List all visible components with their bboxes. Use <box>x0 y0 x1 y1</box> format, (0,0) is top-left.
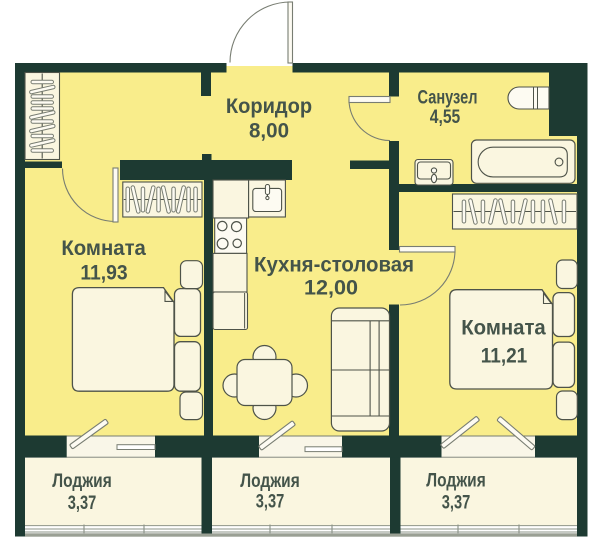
svg-text:3,37: 3,37 <box>442 492 471 513</box>
svg-text:8,00: 8,00 <box>249 120 289 143</box>
svg-text:3,37: 3,37 <box>256 492 285 513</box>
svg-text:4,55: 4,55 <box>430 107 461 128</box>
svg-text:11,93: 11,93 <box>80 262 127 285</box>
svg-text:11,21: 11,21 <box>481 344 528 367</box>
svg-text:Лоджия: Лоджия <box>426 470 486 491</box>
svg-text:Кухня-столовая: Кухня-столовая <box>254 253 414 276</box>
svg-text:12,00: 12,00 <box>304 276 358 299</box>
svg-text:Санузел: Санузел <box>418 87 478 108</box>
svg-text:Комната: Комната <box>461 316 546 339</box>
svg-text:Комната: Комната <box>61 237 146 260</box>
svg-text:3,37: 3,37 <box>68 493 97 514</box>
svg-text:Коридор: Коридор <box>226 95 312 118</box>
svg-text:Лоджия: Лоджия <box>240 471 300 492</box>
svg-text:Лоджия: Лоджия <box>52 471 112 492</box>
